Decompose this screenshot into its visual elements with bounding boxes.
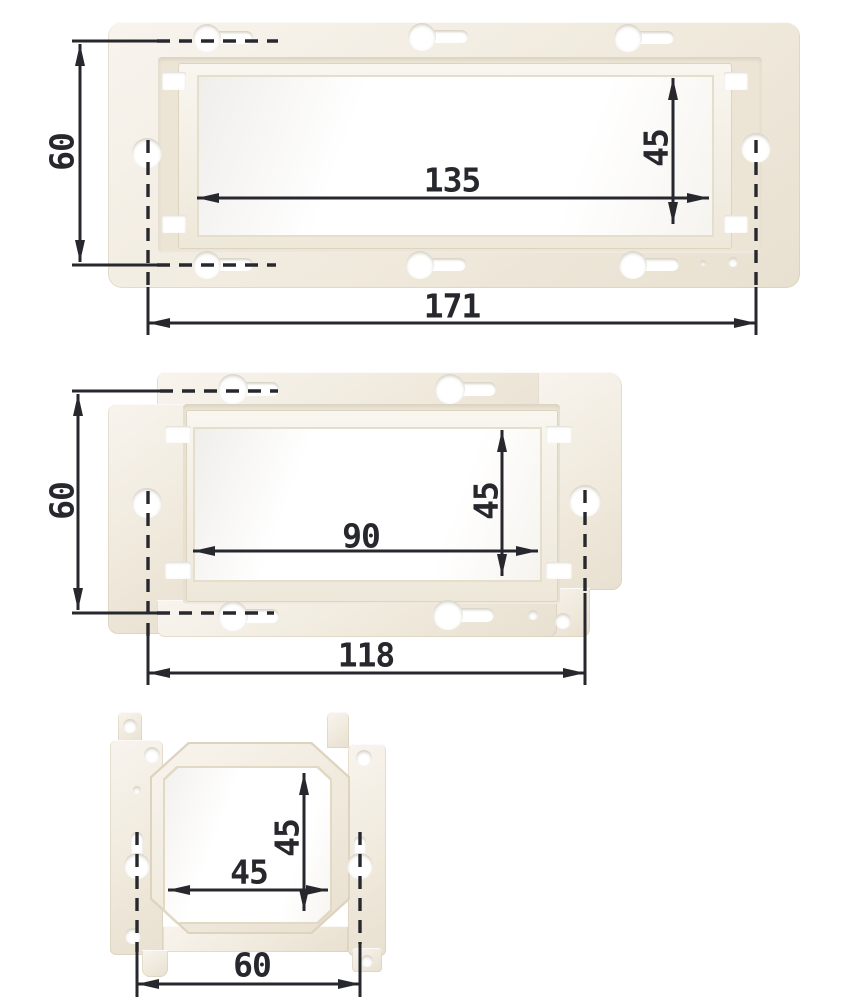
dim-label-overall-width: 60: [233, 946, 271, 985]
dim-label-opening-width: 90: [342, 517, 380, 556]
dim-label-opening-height: 45: [467, 482, 506, 520]
dim-label-overall-width: 171: [424, 287, 481, 326]
dim-label-height: 60: [43, 482, 82, 520]
dim-label-opening-height: 45: [637, 129, 676, 167]
dim-label-opening-width: 135: [424, 161, 481, 200]
dim-label-opening-width: 45: [230, 853, 268, 892]
technical-drawing-canvas: 60 135 45 171 60 90 45 118 45 45 60: [0, 0, 850, 1000]
dim-label-overall-width: 118: [338, 636, 395, 675]
dim-label-height: 60: [43, 133, 82, 171]
dimension-labels: 60 135 45 171 60 90 45 118 45 45 60: [0, 0, 850, 1000]
dim-label-opening-height: 45: [268, 819, 307, 857]
